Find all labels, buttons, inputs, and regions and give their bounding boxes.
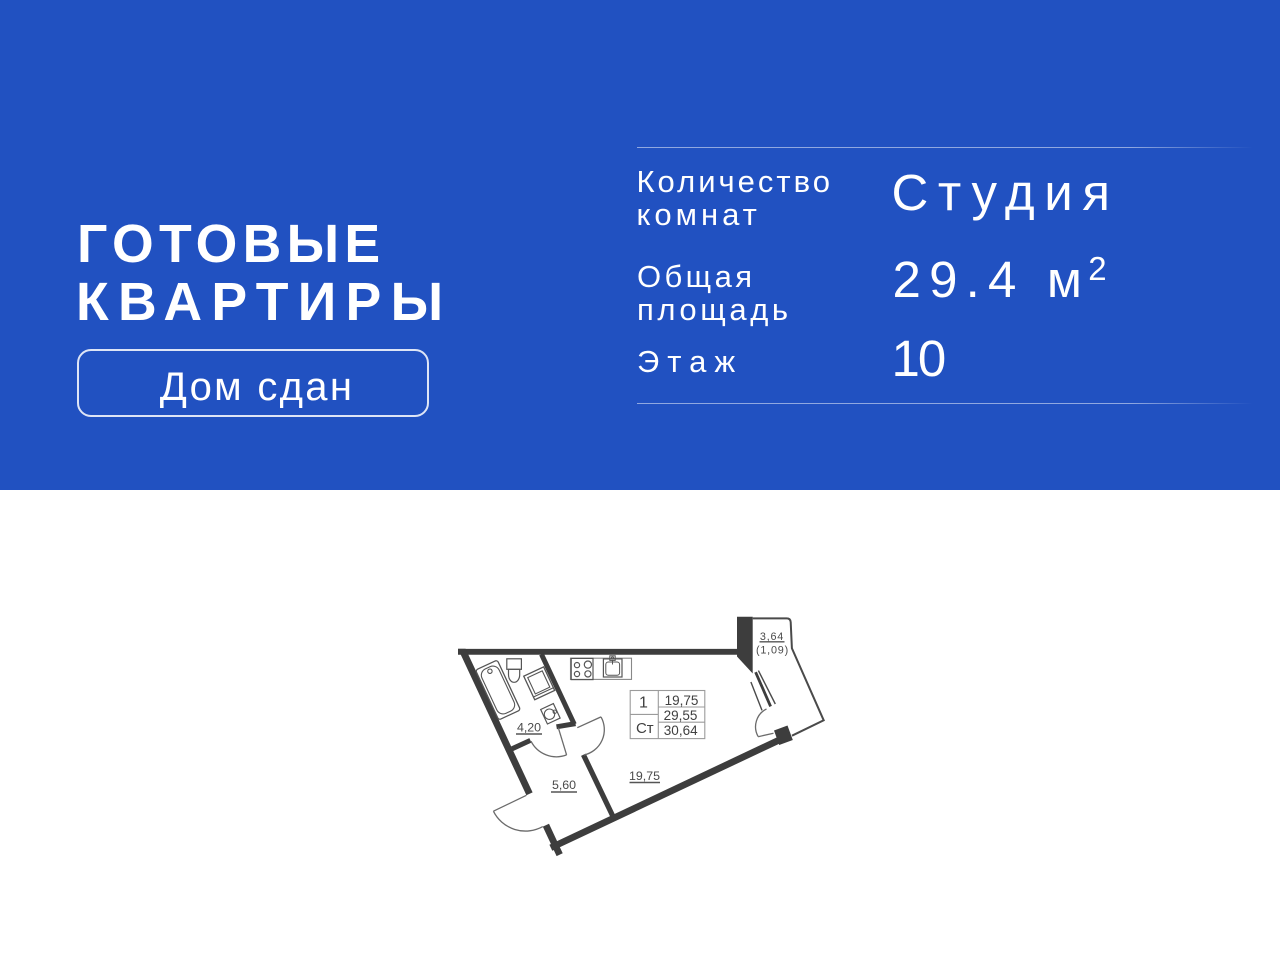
svg-text:Ст: Ст [636,720,654,737]
svg-text:19,75: 19,75 [665,693,699,708]
svg-text:4,20: 4,20 [517,721,541,735]
svg-text:30,64: 30,64 [664,723,698,738]
svg-text:(1,09): (1,09) [756,645,789,657]
svg-text:5,60: 5,60 [552,778,576,792]
svg-text:1: 1 [639,694,648,711]
svg-text:29,55: 29,55 [664,708,698,723]
svg-text:19,75: 19,75 [629,769,660,783]
